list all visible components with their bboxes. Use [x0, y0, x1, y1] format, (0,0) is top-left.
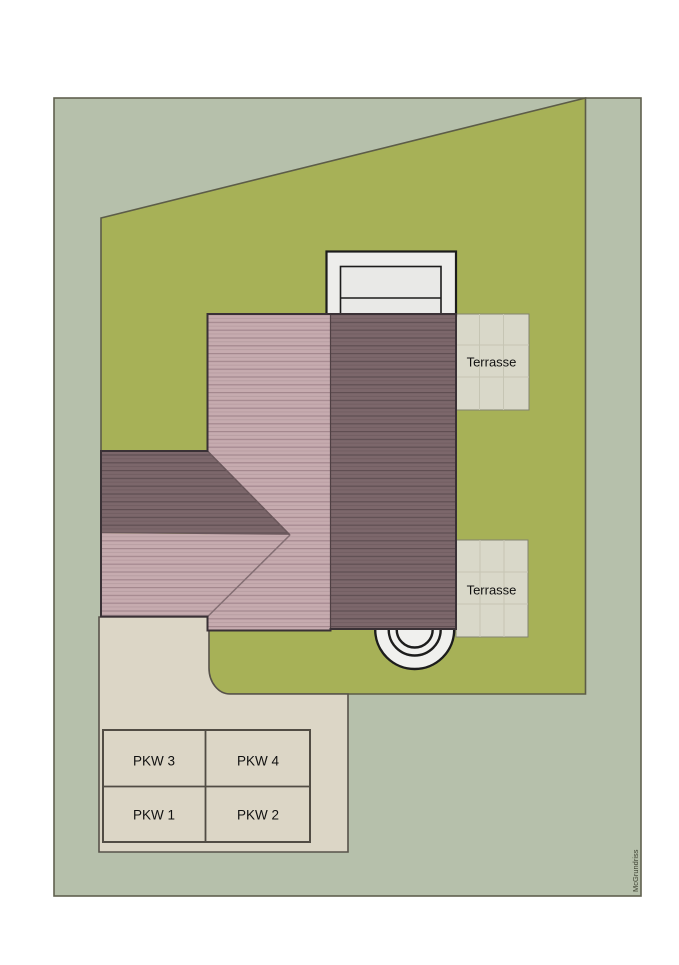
svg-text:PKW 1: PKW 1: [133, 808, 175, 823]
svg-text:Terrasse: Terrasse: [467, 355, 517, 370]
svg-text:PKW 4: PKW 4: [237, 754, 280, 769]
svg-text:PKW 3: PKW 3: [133, 754, 175, 769]
svg-text:Terrasse: Terrasse: [467, 583, 517, 598]
svg-text:McGrundriss: McGrundriss: [631, 849, 640, 892]
svg-text:PKW 2: PKW 2: [237, 808, 279, 823]
